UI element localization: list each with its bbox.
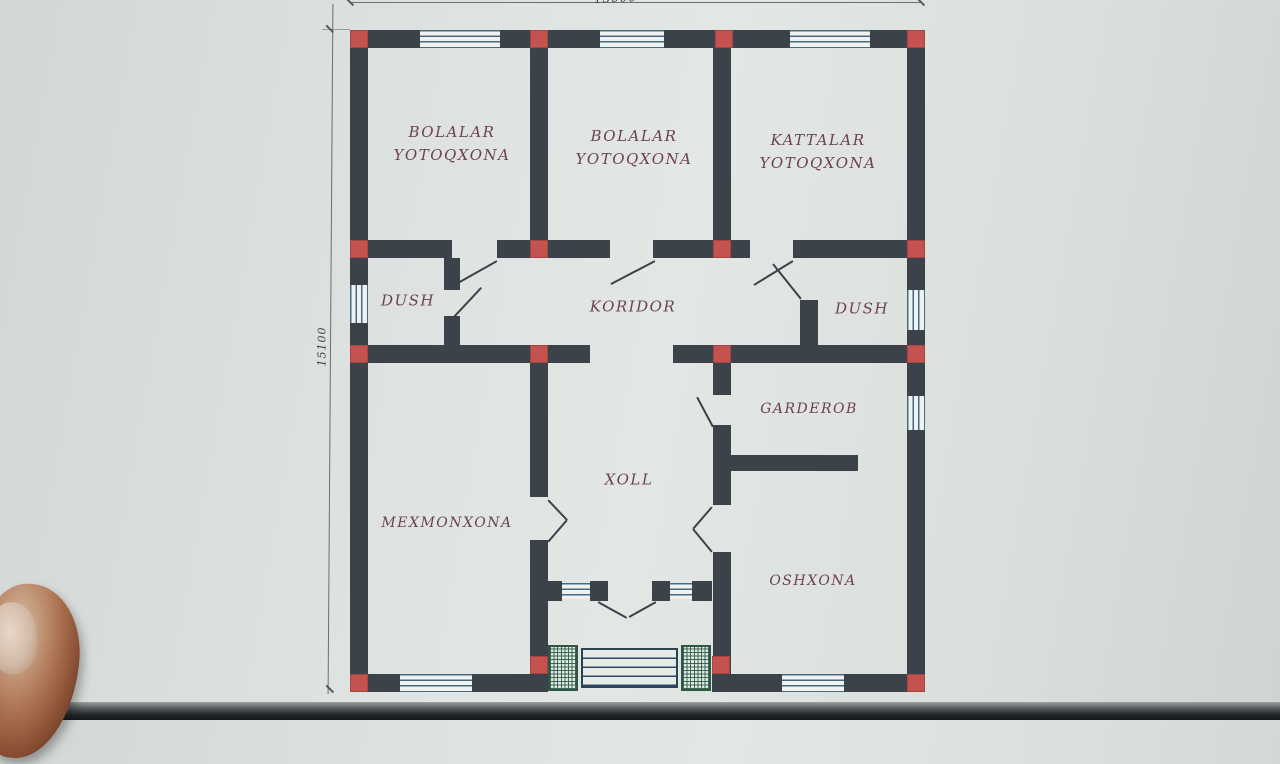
column-marker (713, 240, 731, 258)
thumb-finger (0, 579, 87, 764)
left-dimension-label: 15100 (316, 327, 329, 367)
column-marker (350, 674, 368, 692)
door-swing-dush-left (451, 287, 482, 320)
column-marker (713, 345, 731, 363)
window-marker (562, 583, 590, 599)
hall-wall-left (350, 345, 590, 363)
dimension-tick (346, 0, 354, 6)
column-marker (530, 30, 548, 48)
window-marker (420, 30, 500, 48)
entrance-hatch-left (548, 645, 578, 691)
room-label-kattalar: KATTALAR YOTOQXONA (734, 129, 902, 176)
entry-wall-segment-4 (692, 581, 712, 601)
corridor-wall-segment-4 (793, 240, 907, 258)
room-label-koridor: KORIDOR (590, 295, 676, 318)
column-marker (530, 656, 548, 674)
window-marker (907, 396, 925, 430)
top-dimension-label-clip: 15000 (588, 0, 668, 6)
column-marker (907, 30, 925, 48)
column-marker (712, 656, 730, 674)
column-marker (350, 30, 368, 48)
interior-wall-mexmonxona-right-a (530, 363, 548, 497)
corridor-wall-segment-2 (497, 240, 610, 258)
door-swing-oshxona-a (692, 506, 712, 529)
room-label-garderob: GARDEROB (760, 399, 858, 421)
window-marker (600, 30, 664, 48)
door-swing-mexmonxona-a (547, 499, 568, 521)
door-swing-entrance-right (628, 601, 656, 618)
top-dimension-label: 15000 (594, 0, 638, 6)
room-label-bolalar-2: BOLALAR YOTOQXONA (550, 125, 718, 172)
corridor-wall-segment-3 (653, 240, 750, 258)
door-swing-mexmonxona-b (547, 519, 567, 542)
floor-plan-photo: 15000 15100 (0, 0, 1280, 720)
column-marker (907, 345, 925, 363)
thumb-nail (0, 601, 39, 676)
door-swing-entrance-left (598, 601, 628, 619)
left-extension-line (322, 29, 350, 30)
entrance-hatch-right (681, 645, 711, 691)
door-swing-garderob (696, 397, 714, 428)
window-marker (782, 674, 844, 692)
room-label-oshxona: OSHXONA (769, 571, 856, 593)
entrance-steps (581, 648, 678, 688)
hall-wall-right (673, 345, 907, 363)
interior-wall-dush-right-left (800, 300, 818, 345)
room-label-bolalar-1: BOLALAR YOTOQXONA (368, 121, 536, 168)
window-marker (400, 674, 472, 692)
column-marker (907, 240, 925, 258)
room-label-dush-left: DUSH (381, 289, 435, 312)
window-marker (670, 583, 692, 599)
room-label-mexmonxona: MEXMONXONA (381, 513, 512, 535)
entry-wall-segment-1 (548, 581, 562, 601)
column-marker (907, 674, 925, 692)
entry-wall-segment-2 (590, 581, 608, 601)
column-marker (715, 30, 733, 48)
column-marker (350, 240, 368, 258)
interior-wall-oshxona-left-a (713, 363, 731, 395)
interior-wall-mexmonxona-right-b (530, 540, 548, 674)
photo-bottom-shadow-band (0, 702, 1280, 720)
door-swing-dush-right (772, 263, 802, 299)
column-marker (530, 345, 548, 363)
column-marker (530, 240, 548, 258)
entry-wall-segment-3 (652, 581, 670, 601)
interior-wall-oshxona-left-b (713, 425, 731, 505)
interior-wall-dush-left-stub-bottom (444, 316, 460, 348)
room-label-xoll: XOLL (605, 468, 654, 491)
door-swing-oshxona-b (692, 528, 713, 552)
garderob-bottom-wall (731, 455, 858, 471)
column-marker (350, 345, 368, 363)
corridor-wall-segment-1 (368, 240, 452, 258)
window-marker (907, 290, 925, 330)
window-marker (350, 285, 368, 323)
room-label-dush-right: DUSH (835, 297, 889, 320)
door-swing-bedroom-2 (610, 260, 655, 285)
window-marker (790, 30, 870, 48)
